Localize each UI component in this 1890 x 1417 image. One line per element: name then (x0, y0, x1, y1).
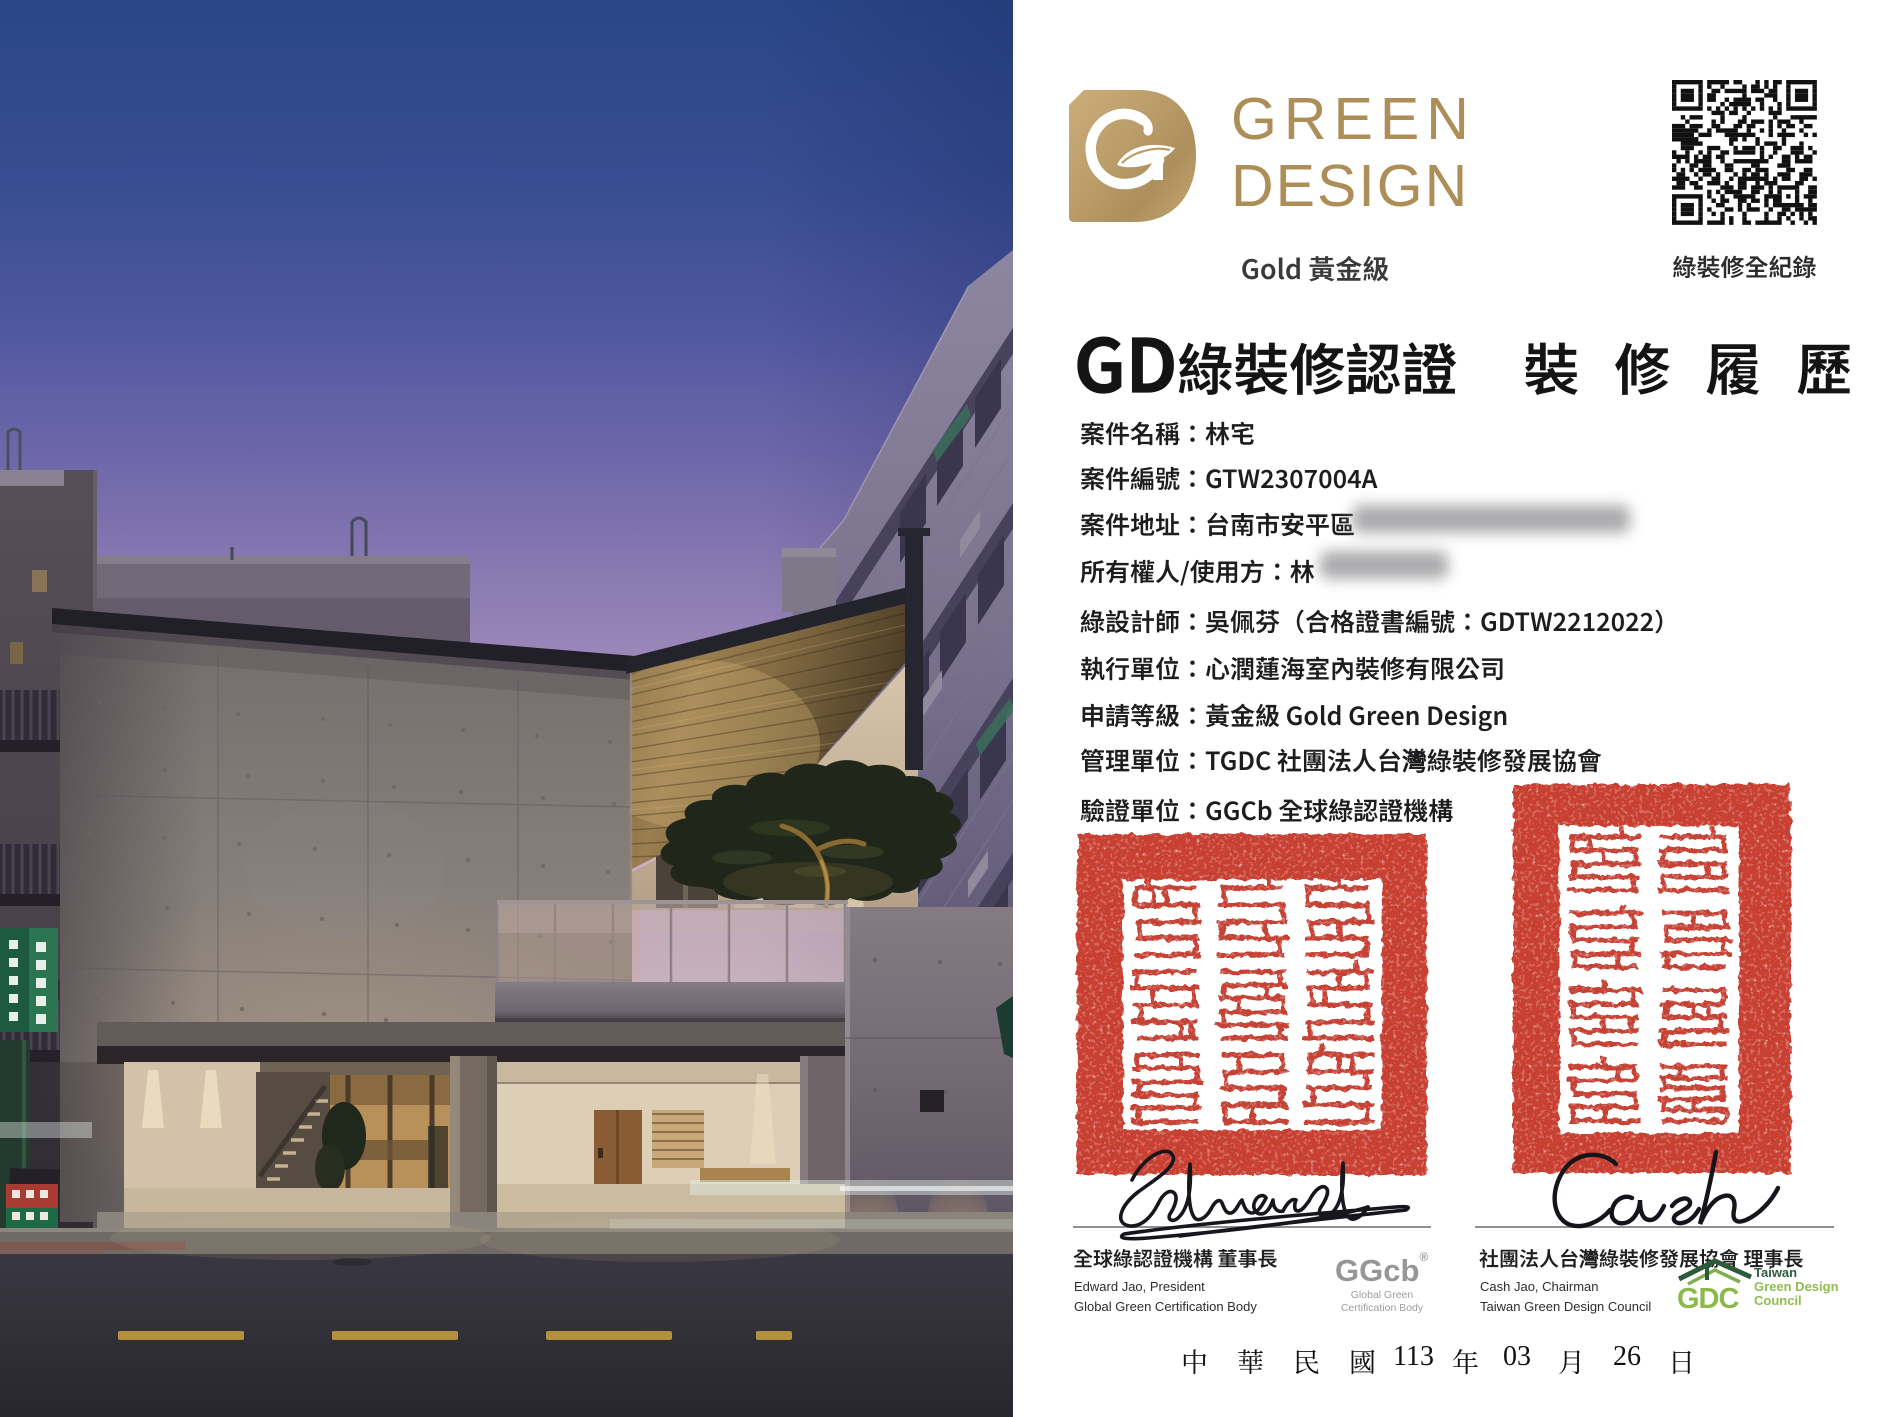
svg-text:GDC: GDC (1677, 1283, 1740, 1312)
